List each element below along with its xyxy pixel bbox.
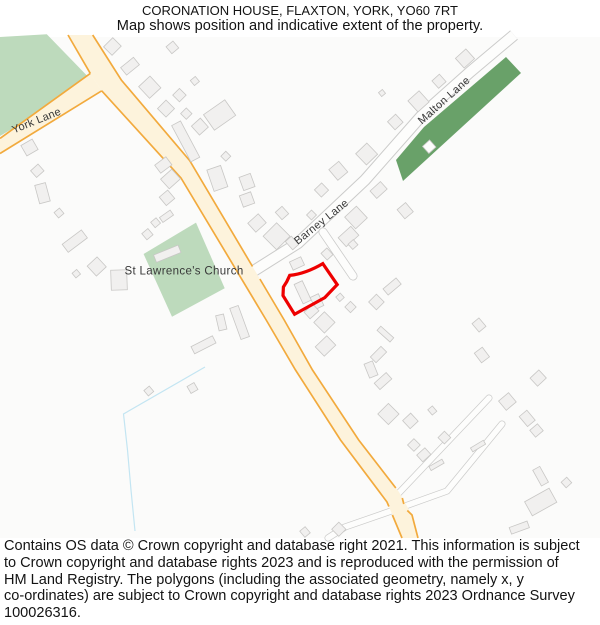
svg-text:St Lawrence's Church: St Lawrence's Church	[124, 266, 243, 278]
